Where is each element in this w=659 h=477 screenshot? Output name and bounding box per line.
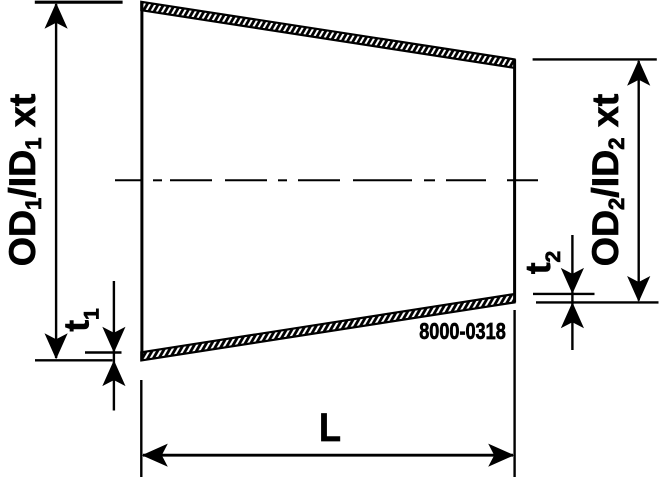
svg-text:8000-0318: 8000-0318 bbox=[419, 319, 506, 345]
svg-text:t2: t2 bbox=[519, 251, 565, 274]
svg-text:L: L bbox=[319, 406, 341, 450]
svg-text:t1: t1 bbox=[58, 308, 104, 332]
svg-text:OD2/ID2 xt: OD2/ID2 xt bbox=[584, 93, 629, 266]
svg-text:OD1/ID1 xt: OD1/ID1 xt bbox=[1, 93, 46, 266]
